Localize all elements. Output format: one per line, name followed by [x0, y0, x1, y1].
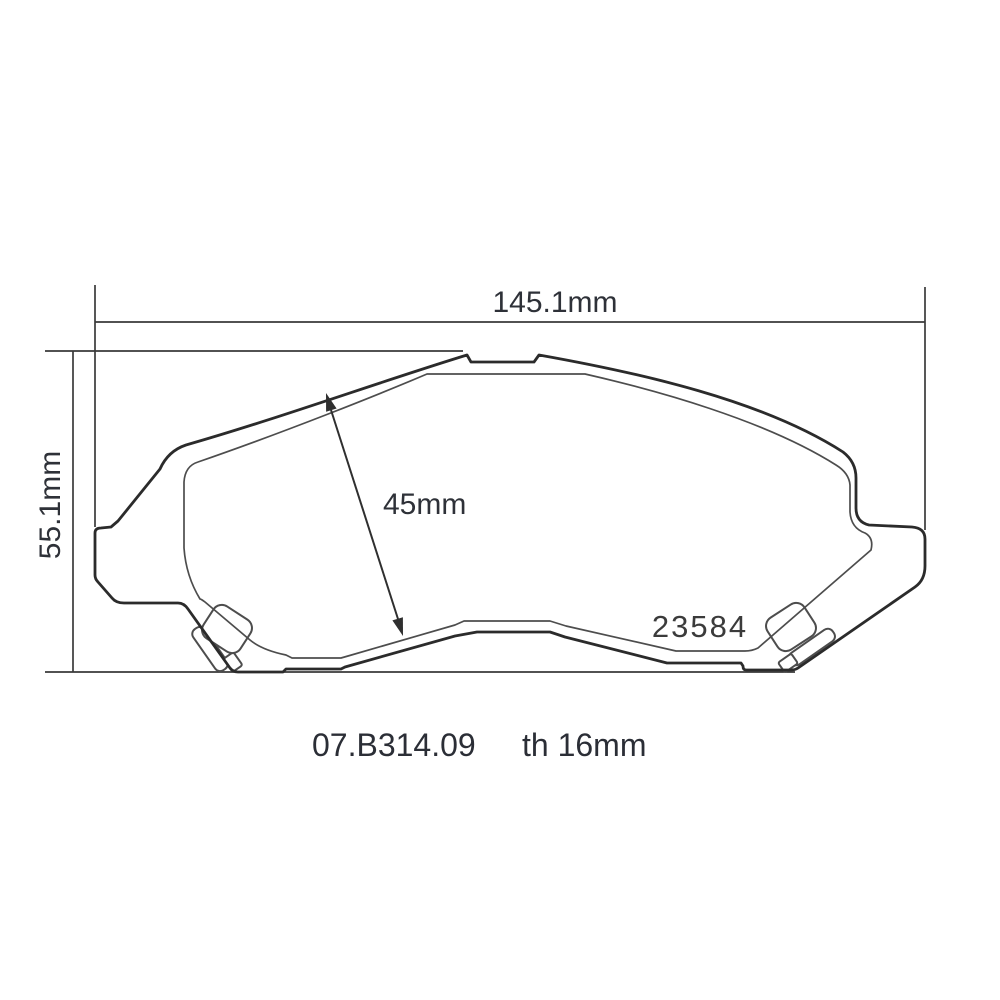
friction-height-dimension: 45mm	[326, 393, 466, 636]
friction-material-line	[184, 374, 872, 658]
part-code-label: 07.B314.09	[312, 727, 476, 763]
friction-arrow-head-top	[326, 393, 337, 412]
friction-height-label: 45mm	[383, 488, 466, 521]
height-dimension-label: 55.1mm	[34, 451, 67, 559]
caption: 07.B314.09 th 16mm	[312, 727, 646, 763]
friction-arrow-head-bottom	[392, 617, 403, 636]
width-dimension: 145.1mm	[95, 285, 925, 530]
width-dimension-label: 145.1mm	[492, 286, 617, 319]
drawing-canvas: 145.1mm 55.1mm	[0, 0, 1000, 1000]
right-clip	[762, 599, 837, 672]
pad-marking-number: 23584	[652, 609, 748, 644]
brake-pad-technical-drawing: 145.1mm 55.1mm	[0, 0, 1000, 1000]
thickness-label: th 16mm	[522, 727, 646, 763]
